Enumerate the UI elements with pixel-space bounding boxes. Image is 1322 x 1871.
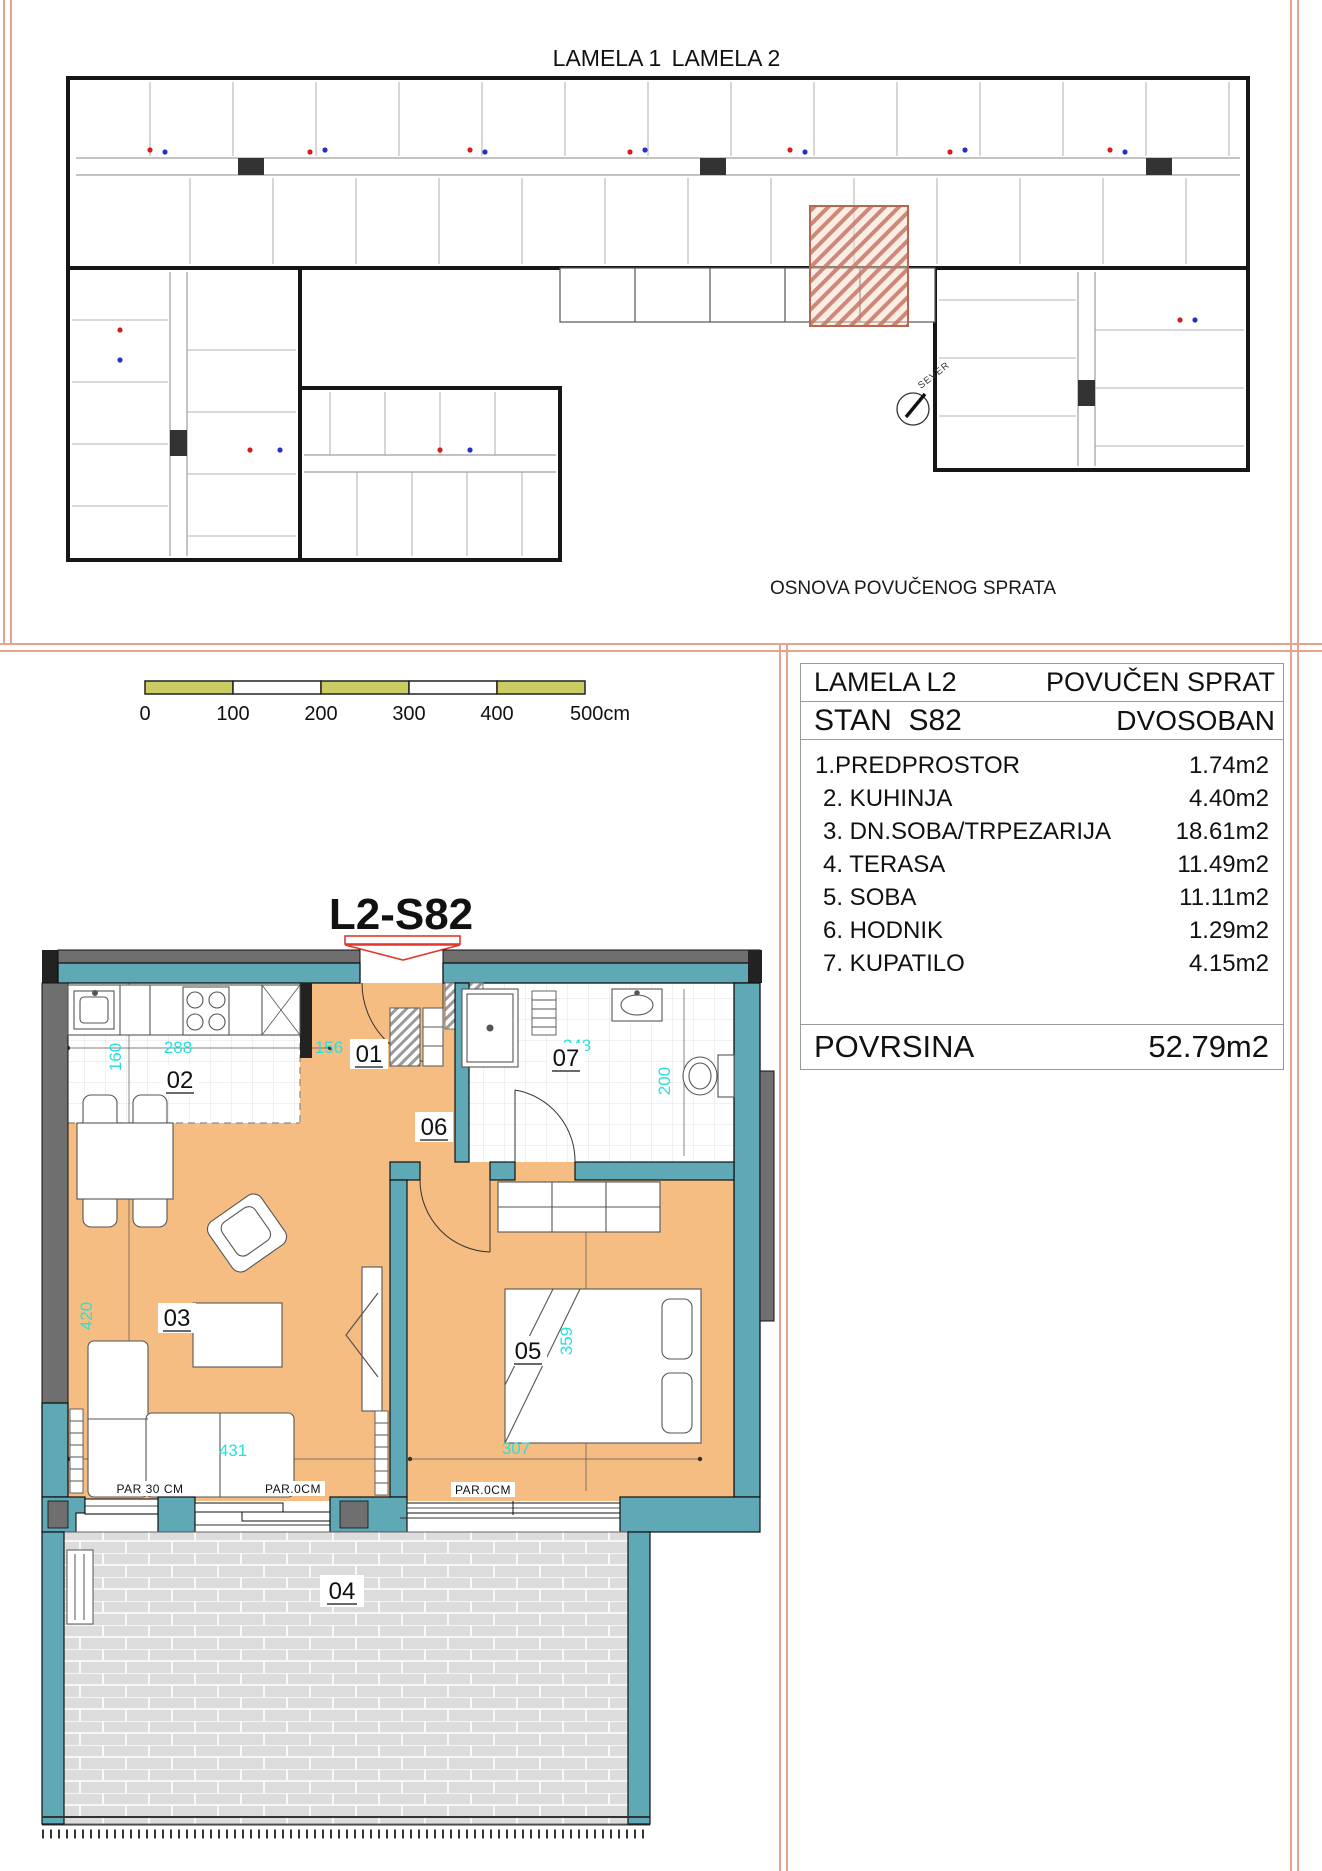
table-row: 4. TERASA 11.49m2	[801, 848, 1283, 881]
window-label-3: PAR.0CM	[455, 1483, 511, 1497]
bedroom-wardrobe	[498, 1182, 660, 1232]
room-label-07: 07	[547, 1043, 585, 1073]
room-name: 3. DN.SOBA/TRPEZARIJA	[823, 818, 1111, 846]
room-number-06: 06	[421, 1114, 448, 1141]
lamela-2-label: LAMELA 2	[672, 45, 781, 71]
scale-label-400: 400	[480, 703, 513, 725]
lamela-title: LAMELA L2	[814, 667, 957, 698]
divider-vertical-right	[786, 643, 788, 1871]
room-label-05: 05	[509, 1336, 547, 1366]
scale-label-200: 200	[304, 703, 337, 725]
dim-kitchen-depth: 160	[106, 1043, 125, 1071]
room-name: 6. HODNIK	[823, 917, 943, 945]
table-row: 7. KUPATILO 4.15m2	[801, 947, 1283, 980]
unit-info-table: LAMELA L2 POVUČEN SPRAT STAN S82 DVOSOBA…	[800, 663, 1284, 1070]
room-number-07: 07	[553, 1045, 580, 1072]
room-label-03: 03	[158, 1303, 196, 1333]
sink-icon	[74, 991, 114, 1029]
table-header: LAMELA L2 POVUČEN SPRAT STAN S82 DVOSOBA…	[800, 663, 1284, 740]
room-list: 1.PREDPROSTOR 1.74m2 2. KUHINJA 4.40m2 3…	[800, 740, 1284, 1025]
floor-title: POVUČEN SPRAT	[1046, 667, 1275, 698]
room-area: 11.49m2	[1177, 851, 1269, 879]
table-row: 6. HODNIK 1.29m2	[801, 914, 1283, 947]
room-name: 1.PREDPROSTOR	[815, 752, 1020, 780]
dim-living-width: 431	[219, 1441, 247, 1460]
table-row: 3. DN.SOBA/TRPEZARIJA 18.61m2	[801, 815, 1283, 848]
unit-type: DVOSOBAN	[1116, 705, 1275, 737]
stove-icon	[183, 987, 229, 1035]
coffee-table	[193, 1303, 282, 1367]
dim-bath-depth: 200	[655, 1067, 674, 1095]
table-row: 1.PREDPROSTOR 1.74m2	[801, 749, 1283, 782]
room-number-01: 01	[356, 1041, 383, 1068]
laundry-rack	[532, 991, 556, 1035]
unit-plan: 0 100 200 300 400 500cm L2-S82	[0, 641, 780, 1871]
dim-entry: 156	[315, 1038, 343, 1057]
highlighted-unit-s82	[810, 206, 908, 326]
room-name: 7. KUPATILO	[823, 950, 965, 978]
window-bedroom	[400, 1501, 627, 1518]
pillow	[662, 1299, 692, 1359]
north-arrow	[906, 394, 925, 417]
bottom-wall-windows	[42, 1497, 760, 1537]
window-label-2: PAR.0CM	[265, 1482, 321, 1496]
kitchen-counter	[68, 985, 300, 1035]
building-overview-plan: LAMELA 1 LAMELA 2	[0, 0, 1322, 643]
total-area: 52.79m2	[1148, 1029, 1269, 1065]
room-name: 4. TERASA	[823, 851, 945, 879]
pillow	[662, 1373, 692, 1433]
room-area: 4.15m2	[1189, 950, 1269, 978]
room-area: 18.61m2	[1176, 818, 1269, 846]
room-area: 11.11m2	[1179, 884, 1269, 912]
dim-bedroom-height: 359	[557, 1327, 576, 1355]
room-area: 1.29m2	[1189, 917, 1269, 945]
unit-title: L2-S82	[329, 890, 473, 939]
scale-bar: 0 100 200 300 400 500cm	[139, 681, 630, 725]
total-label: POVRSINA	[814, 1029, 974, 1065]
room-number-04: 04	[329, 1578, 356, 1605]
radiator-icon	[67, 1550, 93, 1624]
room-number-02: 02	[167, 1067, 194, 1094]
room-area: 1.74m2	[1189, 752, 1269, 780]
scale-label-300: 300	[392, 703, 425, 725]
dim-bedroom-width: 307	[502, 1439, 530, 1458]
stan-title: STAN S82	[814, 704, 962, 738]
room-label-04: 04	[320, 1575, 364, 1607]
overview-caption: OSNOVA POVUČENOG SPRATA	[770, 577, 1056, 599]
hall-closet	[390, 1008, 443, 1066]
scale-label-500: 500cm	[570, 703, 630, 725]
dim-kitchen-width: 288	[164, 1038, 192, 1057]
window-label-1: PAR 30 CM	[117, 1482, 184, 1496]
room-number-03: 03	[164, 1305, 191, 1332]
table-row: 5. SOBA 11.11m2	[801, 881, 1283, 914]
dim-living-height: 420	[77, 1302, 96, 1330]
scale-label-100: 100	[216, 703, 249, 725]
table-row: 2. KUHINJA 4.40m2	[801, 782, 1283, 815]
room-label-01: 01	[350, 1039, 388, 1069]
room-name: 2. KUHINJA	[823, 785, 952, 813]
window-living	[76, 1499, 168, 1537]
parapet-labels: PAR 30 CM PAR.0CM PAR.0CM	[116, 1481, 515, 1497]
room-number-05: 05	[515, 1338, 542, 1365]
scale-label-0: 0	[139, 703, 150, 725]
plan-sheet: LAMELA 1 LAMELA 2	[0, 0, 1322, 1871]
lamela-1-label: LAMELA 1	[553, 45, 662, 71]
room-name: 5. SOBA	[823, 884, 916, 912]
room-label-06: 06	[415, 1112, 453, 1142]
washbasin-icon	[612, 989, 662, 1021]
total-area-row: POVRSINA 52.79m2	[800, 1025, 1284, 1070]
shower	[462, 989, 518, 1067]
room-area: 4.40m2	[1189, 785, 1269, 813]
sliding-door	[195, 1503, 330, 1525]
room-label-02: 02	[161, 1065, 199, 1095]
toilet-icon	[683, 1055, 734, 1097]
